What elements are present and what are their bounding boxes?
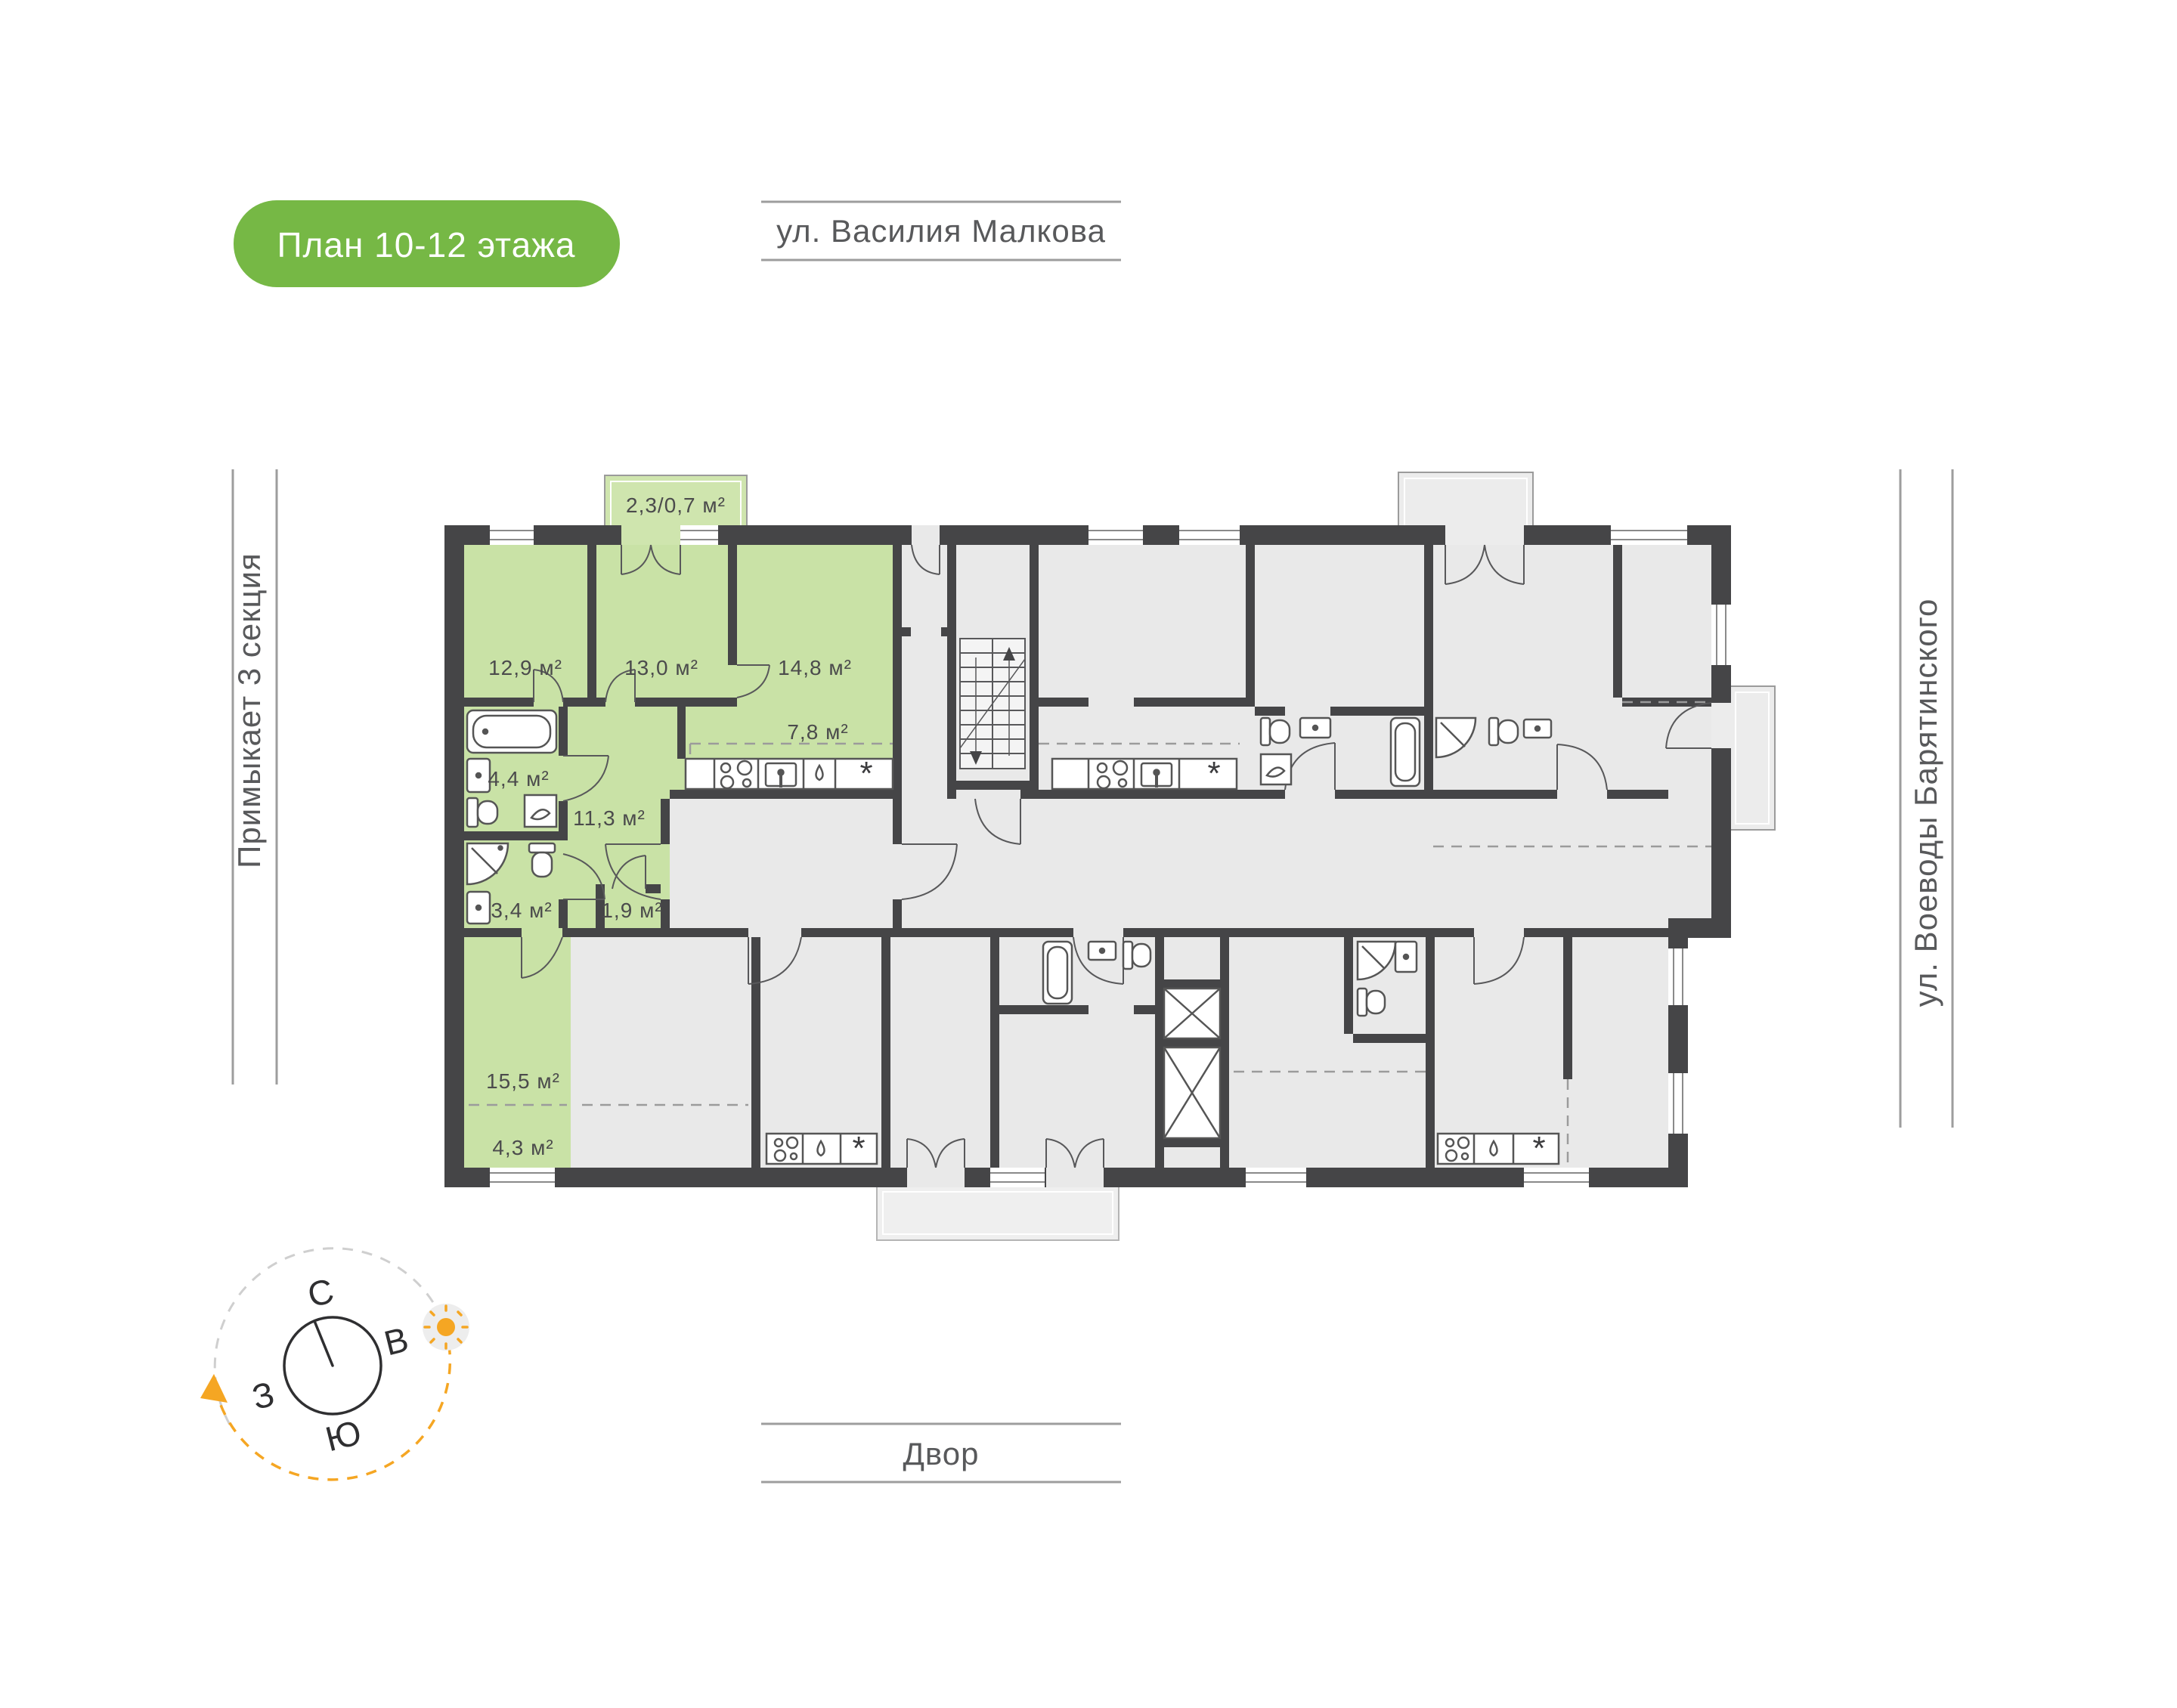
vent-asterisk-icon: *	[852, 1130, 865, 1167]
window	[1711, 605, 1731, 665]
floor-plan-canvas: План 10-12 этажа ул. Василия Малкова ул.…	[0, 0, 2177, 1708]
entrance-porch	[877, 1186, 1119, 1240]
apartment-living-zone[interactable]	[464, 928, 571, 1168]
courtyard-bottom: Двор	[761, 1424, 1121, 1482]
sink-icon	[1524, 719, 1551, 738]
sink-icon	[467, 892, 490, 924]
street-right-label: ул. Воеводы Барятинского	[1908, 599, 1943, 1007]
apartment-bedrooms-zone[interactable]	[464, 545, 893, 707]
toilet-icon	[1358, 989, 1385, 1016]
floor-badge[interactable]: План 10-12 этажа	[234, 200, 620, 287]
window	[1524, 1168, 1589, 1187]
toilet-icon	[1489, 718, 1518, 745]
room-label-hallway: 11,3 м²	[573, 806, 646, 830]
floor-plan-page: План 10-12 этажа ул. Василия Малкова ул.…	[0, 0, 2177, 1708]
street-right: ул. Воеводы Барятинского	[1900, 469, 1952, 1128]
street-top-label: ул. Василия Малкова	[776, 213, 1106, 249]
washing-machine-icon	[525, 795, 556, 827]
window	[1088, 525, 1143, 545]
window	[1668, 948, 1688, 1005]
balcony-top-right	[1398, 472, 1533, 527]
sink-icon	[467, 759, 490, 792]
elevator-shaft-2	[1164, 1047, 1220, 1138]
balcony-door-opening	[1445, 525, 1524, 545]
vent-asterisk-icon: *	[1207, 755, 1220, 792]
adjacent-left: Примыкает 3 секция	[231, 469, 277, 1085]
washing-machine-icon	[1261, 754, 1291, 784]
window	[1179, 525, 1240, 545]
sink-icon	[1395, 942, 1417, 972]
room-label-wardrobe: 1,9 м²	[601, 899, 662, 922]
balcony-area-label: 2,3/0,7 м²	[626, 494, 726, 517]
compass: С В З Ю	[200, 1249, 469, 1480]
vent-asterisk-icon: *	[859, 755, 872, 792]
vent-asterisk-icon: *	[1532, 1130, 1545, 1167]
room-label-living-room: 15,5 м²	[486, 1069, 560, 1093]
sink-icon	[1088, 942, 1116, 960]
room-label-bedroom-3: 14,8 м²	[778, 656, 852, 679]
room-label-entry: 4,3 м²	[492, 1136, 553, 1159]
toilet-icon	[529, 843, 555, 877]
elevators	[1164, 989, 1220, 1138]
entrance-opening-top	[912, 525, 940, 545]
window	[1668, 1073, 1688, 1134]
balcony-door-opening-right	[1711, 703, 1731, 748]
window	[675, 525, 718, 545]
window	[990, 1168, 1045, 1187]
window	[490, 525, 534, 545]
window	[490, 1168, 555, 1187]
compass-east-label: В	[380, 1320, 412, 1363]
room-label-shower-room: 3,4 м²	[491, 899, 552, 922]
toilet-icon	[467, 798, 497, 827]
sink-icon	[1300, 718, 1330, 738]
toilet-icon	[1261, 718, 1290, 745]
room-label-bedroom-2: 13,0 м²	[624, 656, 698, 679]
balcony-right	[1730, 686, 1775, 830]
compass-arrow-icon	[200, 1374, 228, 1403]
room-label-bedroom-1: 12,9 м²	[488, 656, 562, 679]
window	[1246, 1168, 1306, 1187]
bathtub-icon	[1043, 942, 1072, 1004]
compass-north-label: С	[304, 1270, 338, 1314]
adjacent-left-label: Примыкает 3 секция	[231, 552, 267, 868]
floor-badge-label: План 10-12 этажа	[277, 225, 575, 265]
room-label-bathroom: 4,4 м²	[488, 767, 549, 791]
toilet-icon	[1123, 942, 1150, 969]
balcony-door-opening	[621, 525, 680, 545]
street-top: ул. Василия Малкова	[761, 202, 1121, 260]
kitchen-sink-icon	[766, 763, 796, 787]
elevator-shaft-1	[1164, 989, 1220, 1038]
balcony-apartment: 2,3/0,7 м²	[605, 475, 747, 527]
window	[1611, 525, 1687, 545]
compass-south-label: Ю	[321, 1413, 365, 1459]
kitchen-sink-icon	[1141, 763, 1172, 787]
staircase	[960, 639, 1025, 769]
bathtub-icon	[1391, 718, 1420, 786]
compass-west-label: З	[248, 1374, 278, 1417]
room-label-kitchen: 7,8 м²	[787, 720, 848, 744]
entrance-opening-bottom-2	[1046, 1168, 1104, 1187]
entrance-opening-bottom	[907, 1168, 965, 1187]
sun-icon	[423, 1304, 469, 1351]
bathtub-icon	[467, 710, 556, 753]
courtyard-label: Двор	[903, 1436, 979, 1471]
